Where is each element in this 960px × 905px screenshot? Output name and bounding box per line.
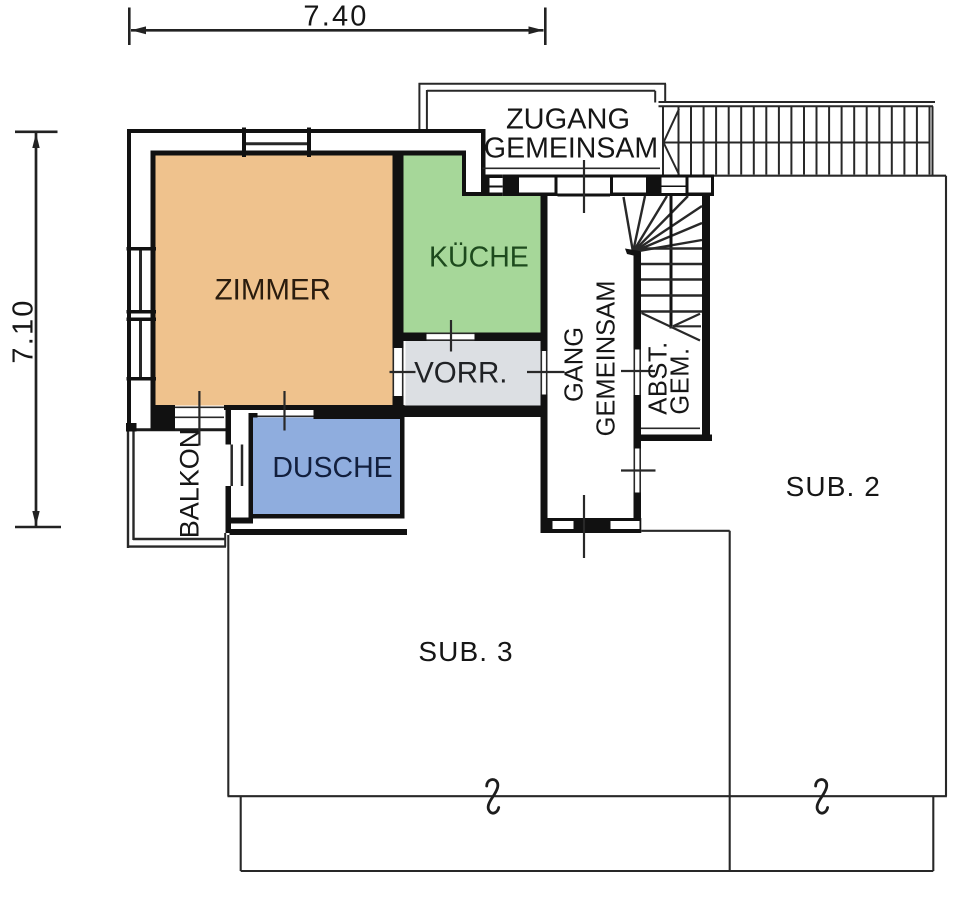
svg-text:GANG: GANG (561, 327, 589, 402)
svg-text:7.10: 7.10 (8, 298, 40, 363)
svg-text:ZIMMER: ZIMMER (215, 273, 331, 306)
svg-text:GEMEINSAM: GEMEINSAM (593, 281, 621, 437)
svg-text:DUSCHE: DUSCHE (272, 452, 392, 484)
svg-text:7.40: 7.40 (303, 1, 368, 33)
svg-text:GEMEINSAM: GEMEINSAM (484, 133, 658, 165)
svg-text:SUB. 2: SUB. 2 (786, 471, 881, 502)
svg-text:GEM.: GEM. (667, 347, 695, 414)
svg-text:VORR.: VORR. (414, 357, 507, 390)
svg-text:SUB. 3: SUB. 3 (418, 636, 513, 667)
svg-text:KÜCHE: KÜCHE (429, 241, 529, 273)
svg-text:BALKON: BALKON (175, 429, 205, 539)
svg-text:ZUGANG: ZUGANG (506, 103, 630, 135)
